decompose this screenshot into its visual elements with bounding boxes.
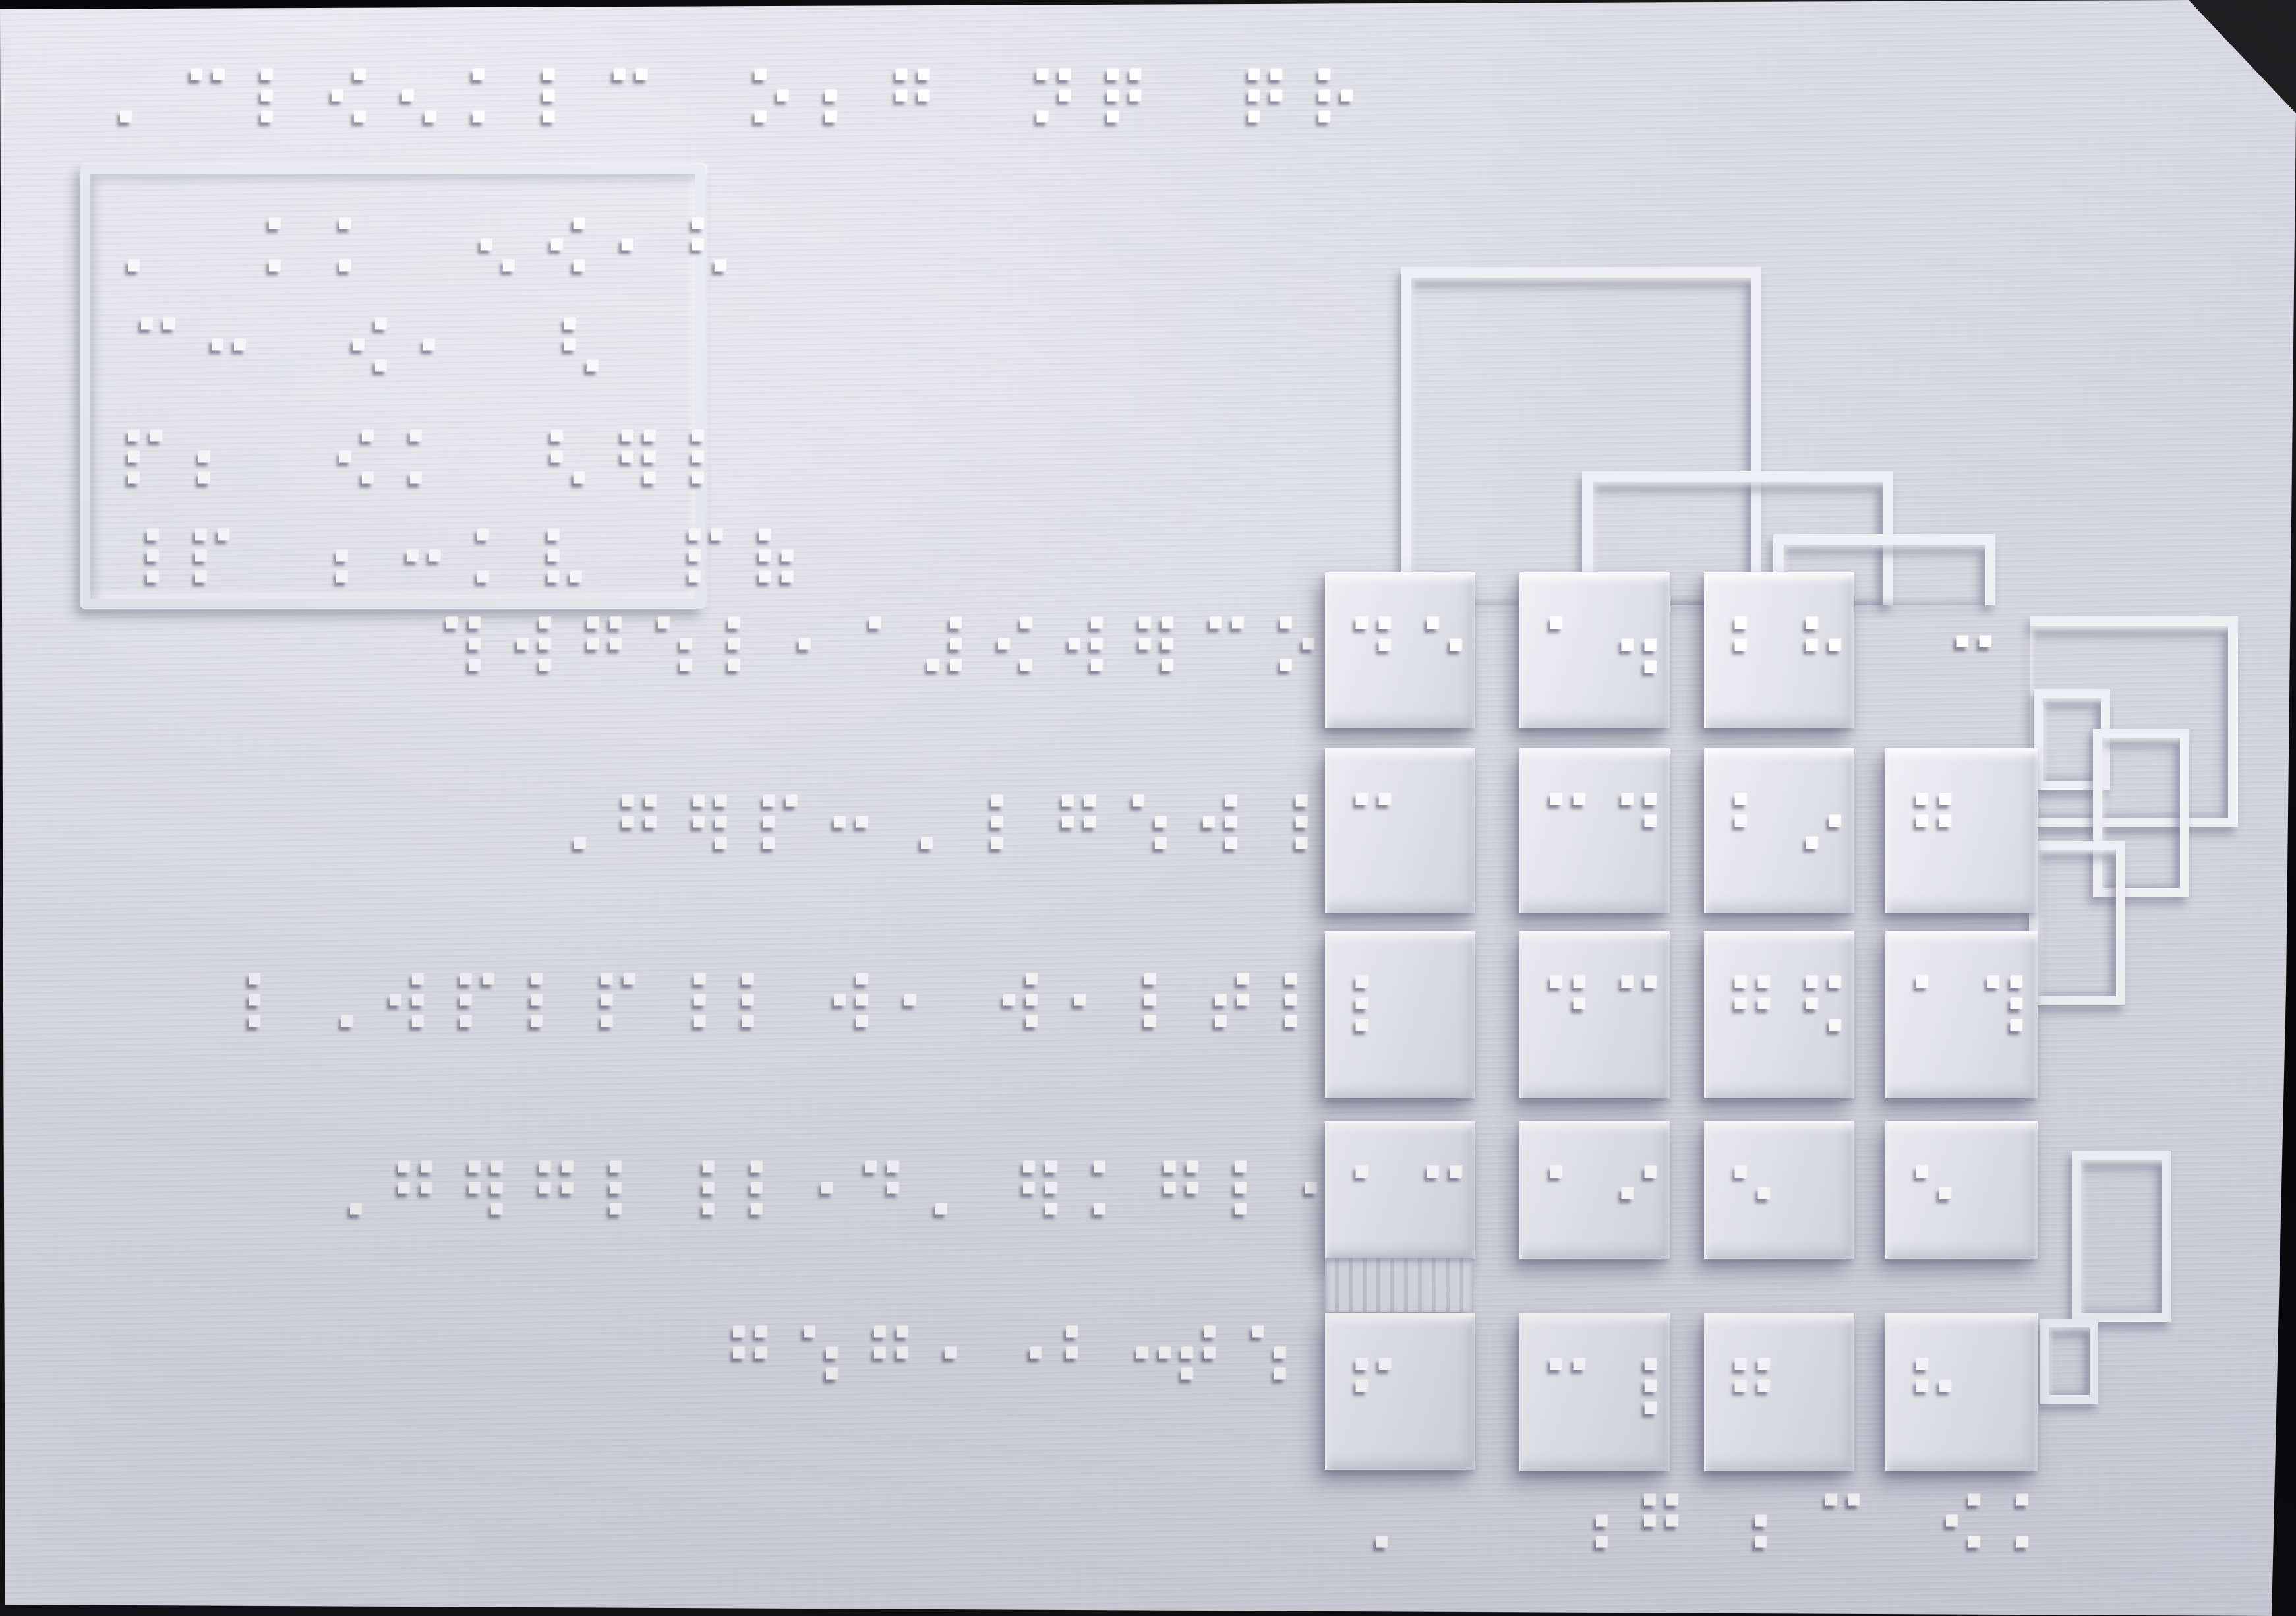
keypad-button-braille: ⠉⠙ xyxy=(1539,789,1681,868)
info-box-line-2: ⠉⠒⠀⠪⠂⠀⠣ xyxy=(130,314,624,390)
label-rowC-g2: ⠺⠂ xyxy=(823,969,964,1046)
keypad-button-braille: ⠓ xyxy=(1904,1354,1976,1433)
keypad-button-r4c3[interactable]: ⠑ xyxy=(1704,1121,1854,1259)
keypad-button-r3c1[interactable]: ⠇ xyxy=(1325,931,1475,1098)
keypad-button-braille: ⠃⠔ xyxy=(1723,789,1866,868)
ribbed-divider xyxy=(1325,1258,1473,1312)
keypad-button-braille: ⠛⠫ xyxy=(1723,972,1866,1051)
keypad-button-braille: ⠙⠑ xyxy=(1344,613,1487,692)
keypad-button-r5c3[interactable]: ⠛ xyxy=(1704,1313,1854,1471)
keypad-button-braille: ⠉ xyxy=(1344,789,1415,868)
info-box-line-1: ⠄⠀⠅⠅⠀⠢⠪⠂⠣ xyxy=(117,214,751,290)
keypad-button-r1c3[interactable]: ⠃⠓ xyxy=(1704,572,1854,728)
keypad-button-braille: ⠁⠲ xyxy=(1539,613,1681,692)
label-rowD-g1: ⠠⠛⠻⠛⠇⠸⠇⠂ xyxy=(316,1157,881,1234)
keypad-button-r2c1[interactable]: ⠉ xyxy=(1325,748,1475,913)
keypad-button-r3c2[interactable]: ⠙⠉ xyxy=(1519,931,1670,1098)
keypad-footer-cell-4: ⠪⠅ xyxy=(1935,1490,2076,1567)
info-box-line-3: ⠏⠆⠀⠪⠅⠀⠣⠻⠇ xyxy=(117,426,751,502)
photo-background: ⠄⠉⠇⠪⠢⠅⠇⠉⠀⠕⠆⠛⠀⠝⠟⠀⠟⠗ ⠄⠀⠅⠅⠀⠢⠪⠂⠣ ⠉⠒⠀⠪⠂⠀⠣ ⠏⠆⠀… xyxy=(0,0,2296,1616)
keypad-button-r5c2[interactable]: ⠉⠸ xyxy=(1519,1313,1670,1471)
keypad-button-braille: ⠛ xyxy=(1723,1354,1794,1433)
label-rowA-g1: ⠹⠺⠛⠱⠇⠂⠁ xyxy=(435,613,929,690)
keypad-button-r4c2[interactable]: ⠁⠊ xyxy=(1519,1121,1670,1259)
label-rowE-g4: ⠞⠱ xyxy=(1170,1322,1311,1398)
keypad-button-braille: ⠁⠊ xyxy=(1539,1162,1681,1241)
keypad-button-r5c1[interactable]: ⠋ xyxy=(1325,1313,1475,1470)
tactile-plate: ⠄⠉⠇⠪⠢⠅⠇⠉⠀⠕⠆⠛⠀⠝⠟⠀⠟⠗ ⠄⠀⠅⠅⠀⠢⠪⠂⠣ ⠉⠒⠀⠪⠂⠀⠣ ⠏⠆⠀… xyxy=(0,0,2296,1616)
keypad-button-braille: ⠑ xyxy=(1723,1162,1794,1241)
keypad-footer-cell-2: ⠰⠛ xyxy=(1562,1490,1703,1567)
keypad-button-r2c4[interactable]: ⠛ xyxy=(1885,748,2038,913)
keypad-button-braille: ⠇ xyxy=(1344,972,1415,1051)
keypad-button-r2c3[interactable]: ⠃⠔ xyxy=(1704,748,1854,913)
keypad-button-r1c2[interactable]: ⠁⠲ xyxy=(1519,572,1670,728)
keypad-button-r5c4[interactable]: ⠓ xyxy=(1885,1313,2038,1471)
keypad-row1-plate-dots: ⠒ xyxy=(1945,610,2016,689)
keypad-button-braille: ⠋ xyxy=(1344,1354,1415,1433)
label-rowC-g3: ⠺⠂⠇⠞⠇ xyxy=(992,969,1345,1046)
label-rowB-g1: ⠠⠛⠻⠏⠒ xyxy=(541,791,893,868)
label-rowD-g3: ⠻⠅⠛⠇⠂ xyxy=(1012,1157,1365,1234)
keypad-button-braille: ⠁⠹ xyxy=(1904,972,2047,1051)
label-rowD-g2: ⠙⠄ xyxy=(854,1157,995,1234)
keypad-button-r1c1[interactable]: ⠙⠑ xyxy=(1325,572,1475,728)
keypad-button-braille: ⠃⠓ xyxy=(1723,613,1866,692)
keypad-button-braille: ⠁⠉ xyxy=(1344,1162,1487,1241)
keypad-button-braille: ⠑ xyxy=(1904,1162,1976,1241)
label-rowE-g1: ⠛⠱⠛⠂ xyxy=(722,1322,1004,1398)
window-frame-8 xyxy=(2072,1151,2171,1322)
keypad-button-r2c2[interactable]: ⠉⠙ xyxy=(1519,748,1670,913)
keypad-button-r3c4[interactable]: ⠁⠹ xyxy=(1885,931,2038,1098)
info-box-line-4: ⠸⠏⠀⠆⠒⠅⠧⠀⠏⠷ xyxy=(113,525,819,601)
keypad-footer-cell-3: ⠆⠉ xyxy=(1744,1490,1885,1567)
keypad-button-braille: ⠛ xyxy=(1904,789,1976,868)
info-box-frame: ⠄⠀⠅⠅⠀⠢⠪⠂⠣ ⠉⠒⠀⠪⠂⠀⠣ ⠏⠆⠀⠪⠅⠀⠣⠻⠇ ⠸⠏⠀⠆⠒⠅⠧⠀⠏⠷ xyxy=(80,164,705,609)
label-rowC-g1: ⠇⠠⠺⠏⠇⠏⠸⠇ xyxy=(237,969,802,1046)
window-frame-9 xyxy=(2040,1319,2098,1404)
keypad-button-braille: ⠉⠸ xyxy=(1539,1354,1681,1433)
keypad-button-r4c1[interactable]: ⠁⠉ xyxy=(1325,1121,1475,1259)
keypad-button-r3c3[interactable]: ⠛⠫ xyxy=(1704,931,1854,1098)
keypad-footer-cell-1: ⠄ xyxy=(1365,1490,1435,1567)
keypad-button-braille: ⠙⠉ xyxy=(1539,972,1681,1051)
title-braille: ⠄⠉⠇⠪⠢⠅⠇⠉⠀⠕⠆⠛⠀⠝⠟⠀⠟⠗ xyxy=(109,65,1378,141)
keypad-button-r4c4[interactable]: ⠑ xyxy=(1885,1121,2038,1259)
